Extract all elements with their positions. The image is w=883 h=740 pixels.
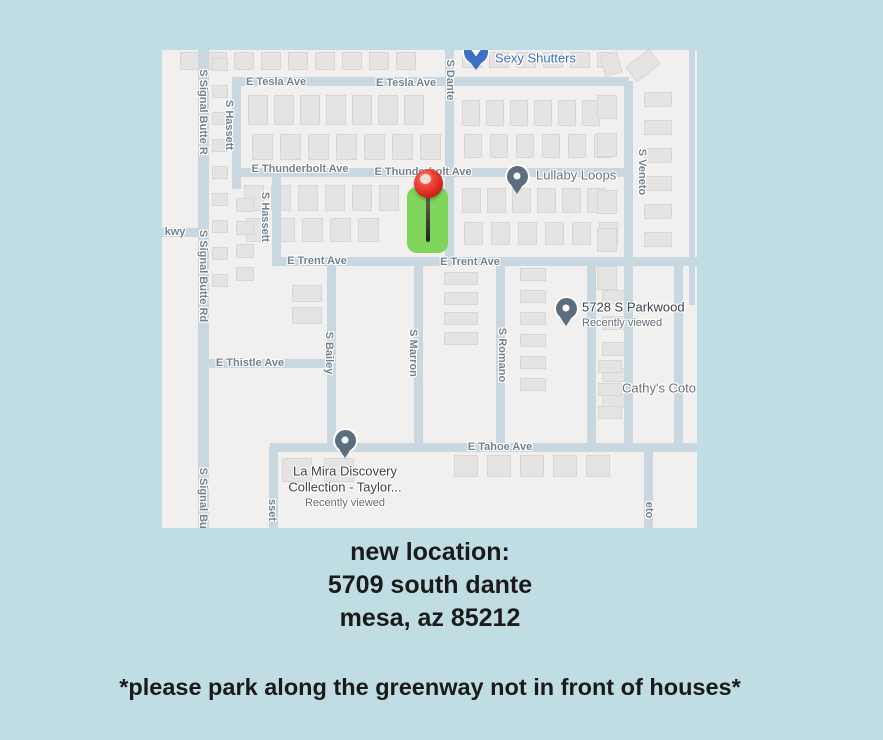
- building: [358, 218, 379, 242]
- street-label: S Signal But: [197, 468, 209, 528]
- building: [462, 188, 481, 213]
- building: [516, 134, 534, 158]
- business-label: Sexy Shutters: [495, 51, 576, 66]
- building: [598, 383, 622, 396]
- poi-subtitle: Recently viewed: [305, 497, 385, 509]
- street-label: E Tesla Ave: [246, 76, 306, 88]
- building: [180, 52, 200, 70]
- street-label: S Bailey: [323, 332, 335, 375]
- building: [300, 95, 320, 125]
- building: [454, 455, 478, 477]
- building: [553, 455, 577, 477]
- building: [342, 52, 362, 70]
- street-label: E Thistle Ave: [216, 357, 284, 369]
- building: [490, 134, 508, 158]
- building: [534, 100, 552, 126]
- building: [379, 185, 399, 211]
- building: [510, 100, 528, 126]
- building: [542, 134, 560, 158]
- building: [212, 274, 228, 287]
- building: [236, 198, 254, 212]
- building: [364, 134, 385, 160]
- building: [274, 95, 294, 125]
- building: [644, 92, 672, 107]
- road: [272, 172, 281, 266]
- address-line-3: mesa, az 85212: [0, 602, 860, 635]
- poi-title: Collection - Taylor...: [288, 480, 401, 495]
- poi-label: Cathy's Cotor: [622, 381, 697, 396]
- building: [464, 134, 482, 158]
- street-label: E Thunderbolt Ave: [252, 163, 349, 175]
- building: [520, 378, 546, 391]
- building: [520, 268, 546, 281]
- street-label: sset: [266, 499, 278, 521]
- building: [597, 228, 617, 252]
- road: [689, 50, 695, 305]
- building: [298, 185, 318, 211]
- building: [302, 218, 323, 242]
- pushpin-ball-icon: [414, 169, 443, 198]
- street-label: S Dante: [444, 60, 456, 101]
- building: [444, 312, 478, 325]
- poi-title: La Mira Discovery: [293, 464, 397, 479]
- building: [248, 95, 268, 125]
- building: [520, 290, 546, 303]
- building: [326, 95, 346, 125]
- building: [537, 188, 556, 213]
- road: [587, 266, 596, 447]
- building: [597, 133, 617, 157]
- street-label: kwy: [165, 226, 186, 238]
- building: [597, 190, 617, 214]
- poi-label: Lullaby Loops: [536, 168, 616, 183]
- building: [236, 267, 254, 281]
- building: [396, 52, 416, 70]
- building: [598, 406, 622, 419]
- building: [597, 266, 617, 290]
- map-image: E Tesla AveE Tesla AveS DanteS Signal Bu…: [162, 50, 697, 528]
- parking-note: *please park along the greenway not in f…: [0, 674, 860, 701]
- building: [545, 222, 564, 245]
- street-label: eto: [643, 502, 655, 519]
- building: [280, 134, 301, 160]
- building: [598, 360, 622, 373]
- building: [420, 134, 441, 160]
- building: [568, 134, 586, 158]
- building: [352, 95, 372, 125]
- building: [644, 204, 672, 219]
- building: [586, 455, 610, 477]
- address-block: new location: 5709 south dante mesa, az …: [0, 536, 860, 635]
- building: [520, 455, 544, 477]
- building: [392, 134, 413, 160]
- building: [487, 188, 506, 213]
- building: [597, 95, 617, 119]
- building: [520, 356, 546, 369]
- building: [236, 244, 254, 258]
- street-label: S Hassett: [259, 192, 271, 242]
- building: [404, 95, 424, 125]
- poi-subtitle: Recently viewed: [582, 317, 662, 329]
- building: [212, 247, 228, 260]
- building: [444, 292, 478, 305]
- address-line-2: 5709 south dante: [0, 569, 860, 602]
- building: [464, 222, 483, 245]
- street-label: S Veneto: [636, 149, 648, 195]
- building: [292, 307, 322, 324]
- building: [234, 52, 254, 70]
- street-label: E Trent Ave: [440, 256, 500, 268]
- building: [444, 272, 478, 285]
- building: [486, 100, 504, 126]
- building: [369, 52, 389, 70]
- building: [520, 334, 546, 347]
- building: [491, 222, 510, 245]
- building: [212, 193, 228, 206]
- building: [212, 85, 228, 98]
- building: [236, 221, 254, 235]
- building: [644, 232, 672, 247]
- street-label: E Tahoe Ave: [468, 441, 532, 453]
- street-label: S Romano: [496, 328, 508, 382]
- building: [644, 176, 672, 191]
- street-label: S Signal Butte R: [197, 69, 209, 155]
- street-label: E Trent Ave: [287, 255, 347, 267]
- building: [520, 312, 546, 325]
- saved-place-pin-icon: [507, 166, 528, 187]
- building: [644, 120, 672, 135]
- building: [644, 148, 672, 163]
- saved-place-pin-icon: [335, 430, 356, 451]
- building: [315, 52, 335, 70]
- building: [558, 100, 576, 126]
- building: [261, 52, 281, 70]
- building: [378, 95, 398, 125]
- road: [232, 177, 241, 189]
- building: [444, 332, 478, 345]
- building: [330, 218, 351, 242]
- building: [487, 455, 511, 477]
- building: [562, 188, 581, 213]
- street-label: S Marron: [407, 329, 419, 377]
- street-label: S Hassett: [223, 100, 235, 150]
- building: [599, 51, 622, 77]
- saved-place-pin-icon: [556, 298, 577, 319]
- flyer-background: { "colors": { "page_bg": "#bfdde3", "map…: [0, 0, 883, 740]
- address-line-1: new location:: [0, 536, 860, 569]
- building: [352, 185, 372, 211]
- building: [288, 52, 308, 70]
- building: [518, 222, 537, 245]
- building: [325, 185, 345, 211]
- street-label: S Signal Butte Rd: [197, 230, 209, 322]
- building: [212, 220, 228, 233]
- building: [336, 134, 357, 160]
- street-label: E Tesla Ave: [376, 77, 436, 89]
- building: [252, 134, 273, 160]
- building: [308, 134, 329, 160]
- pushpin-highlight: [420, 174, 431, 184]
- building: [292, 285, 322, 302]
- building: [625, 50, 660, 82]
- building: [572, 222, 591, 245]
- building: [212, 166, 228, 179]
- building: [212, 58, 228, 71]
- road: [674, 266, 683, 447]
- poi-title: 5728 S Parkwood: [582, 300, 685, 315]
- building: [462, 100, 480, 126]
